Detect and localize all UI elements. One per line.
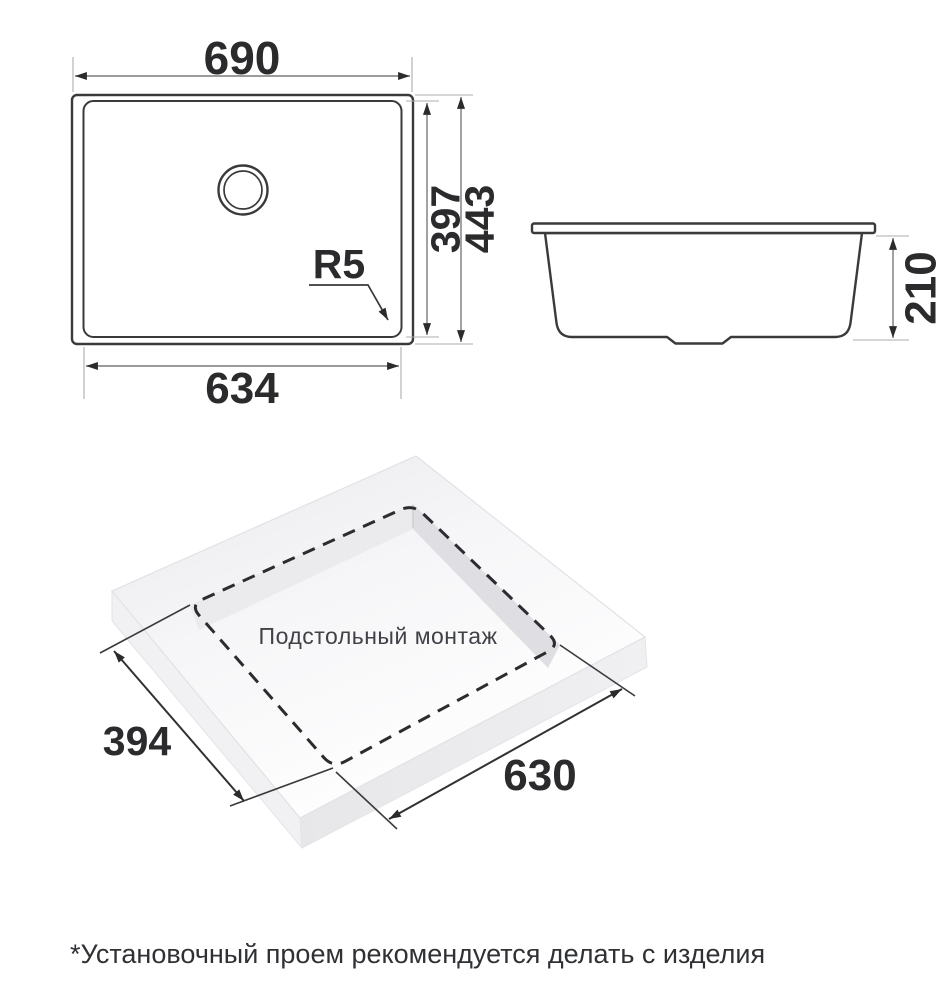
corner-radius-label: R5 xyxy=(313,241,365,287)
dim-outer-height-label: 443 xyxy=(456,185,502,253)
sink-outer-rim xyxy=(72,95,413,344)
dim-outer-width-label: 690 xyxy=(204,32,281,84)
mounting-type-caption: Подстольный монтаж xyxy=(259,623,498,649)
sink-body-profile xyxy=(545,233,862,344)
isometric-view: 394 630 Подстольный монтаж xyxy=(100,456,647,848)
installation-footnote: *Установочный проем рекомендуется делать… xyxy=(70,939,765,969)
top-view: 690 634 397 443 R5 xyxy=(72,32,502,413)
sink-rim-profile xyxy=(532,224,875,234)
dim-depth-label: 210 xyxy=(896,251,945,324)
dim-inner-width-label: 634 xyxy=(205,364,279,413)
dim-cutout-width-label: 630 xyxy=(503,751,576,800)
side-view: 210 xyxy=(532,224,945,344)
dim-cutout-depth-label: 394 xyxy=(103,718,172,764)
sink-dimension-drawing: 690 634 397 443 R5 210 xyxy=(0,0,948,1000)
drawing-canvas: 690 634 397 443 R5 210 xyxy=(0,0,948,1000)
